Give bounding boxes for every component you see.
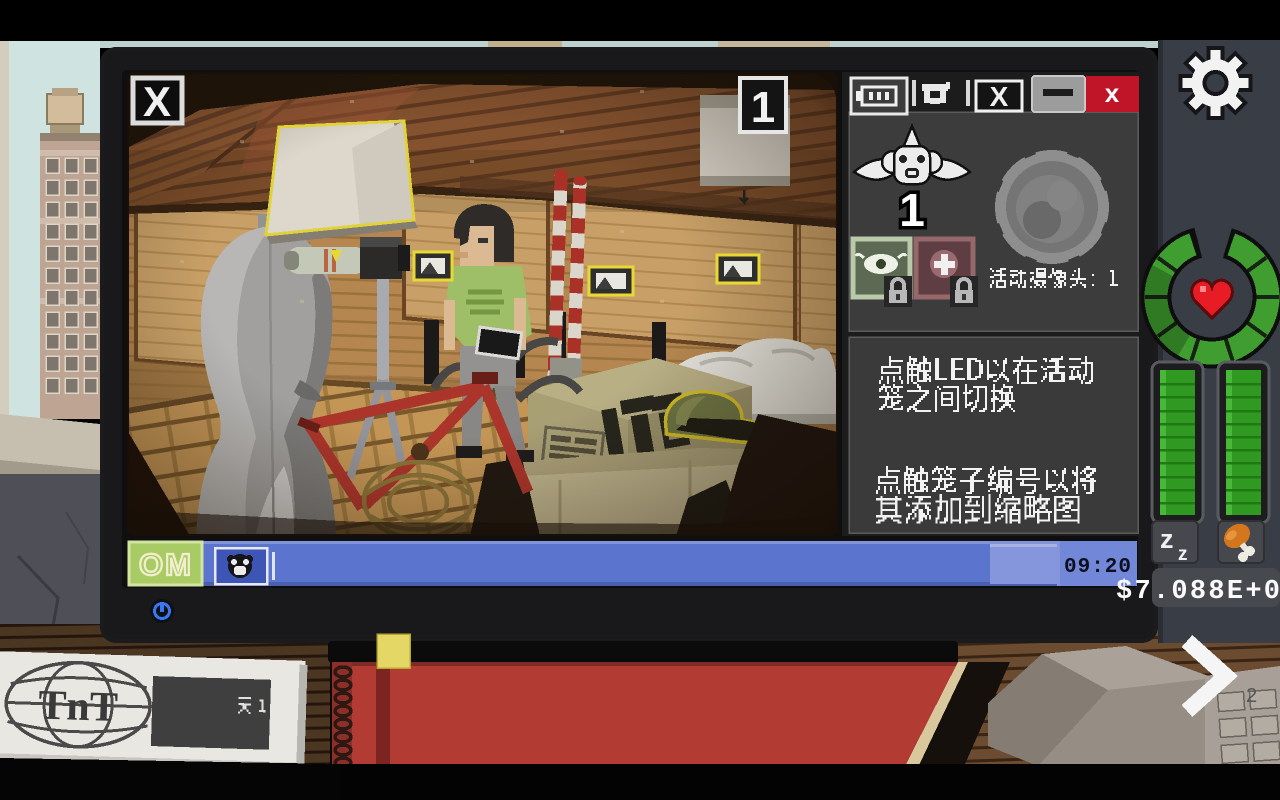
svg-text:2: 2 (1246, 685, 1257, 707)
svg-text:x: x (1105, 78, 1120, 108)
svg-text:X: X (990, 81, 1009, 112)
svg-text:X: X (143, 78, 171, 125)
svg-text:$7.088E+0: $7.088E+0 (1116, 577, 1280, 607)
svg-text:1: 1 (899, 184, 925, 236)
svg-text:z: z (1160, 524, 1174, 554)
svg-text:OM: OM (139, 547, 193, 582)
svg-text:TnT: TnT (38, 683, 119, 731)
svg-text:09:20: 09:20 (1064, 556, 1132, 579)
svg-text:1: 1 (751, 83, 775, 132)
svg-text:z: z (1178, 544, 1188, 565)
